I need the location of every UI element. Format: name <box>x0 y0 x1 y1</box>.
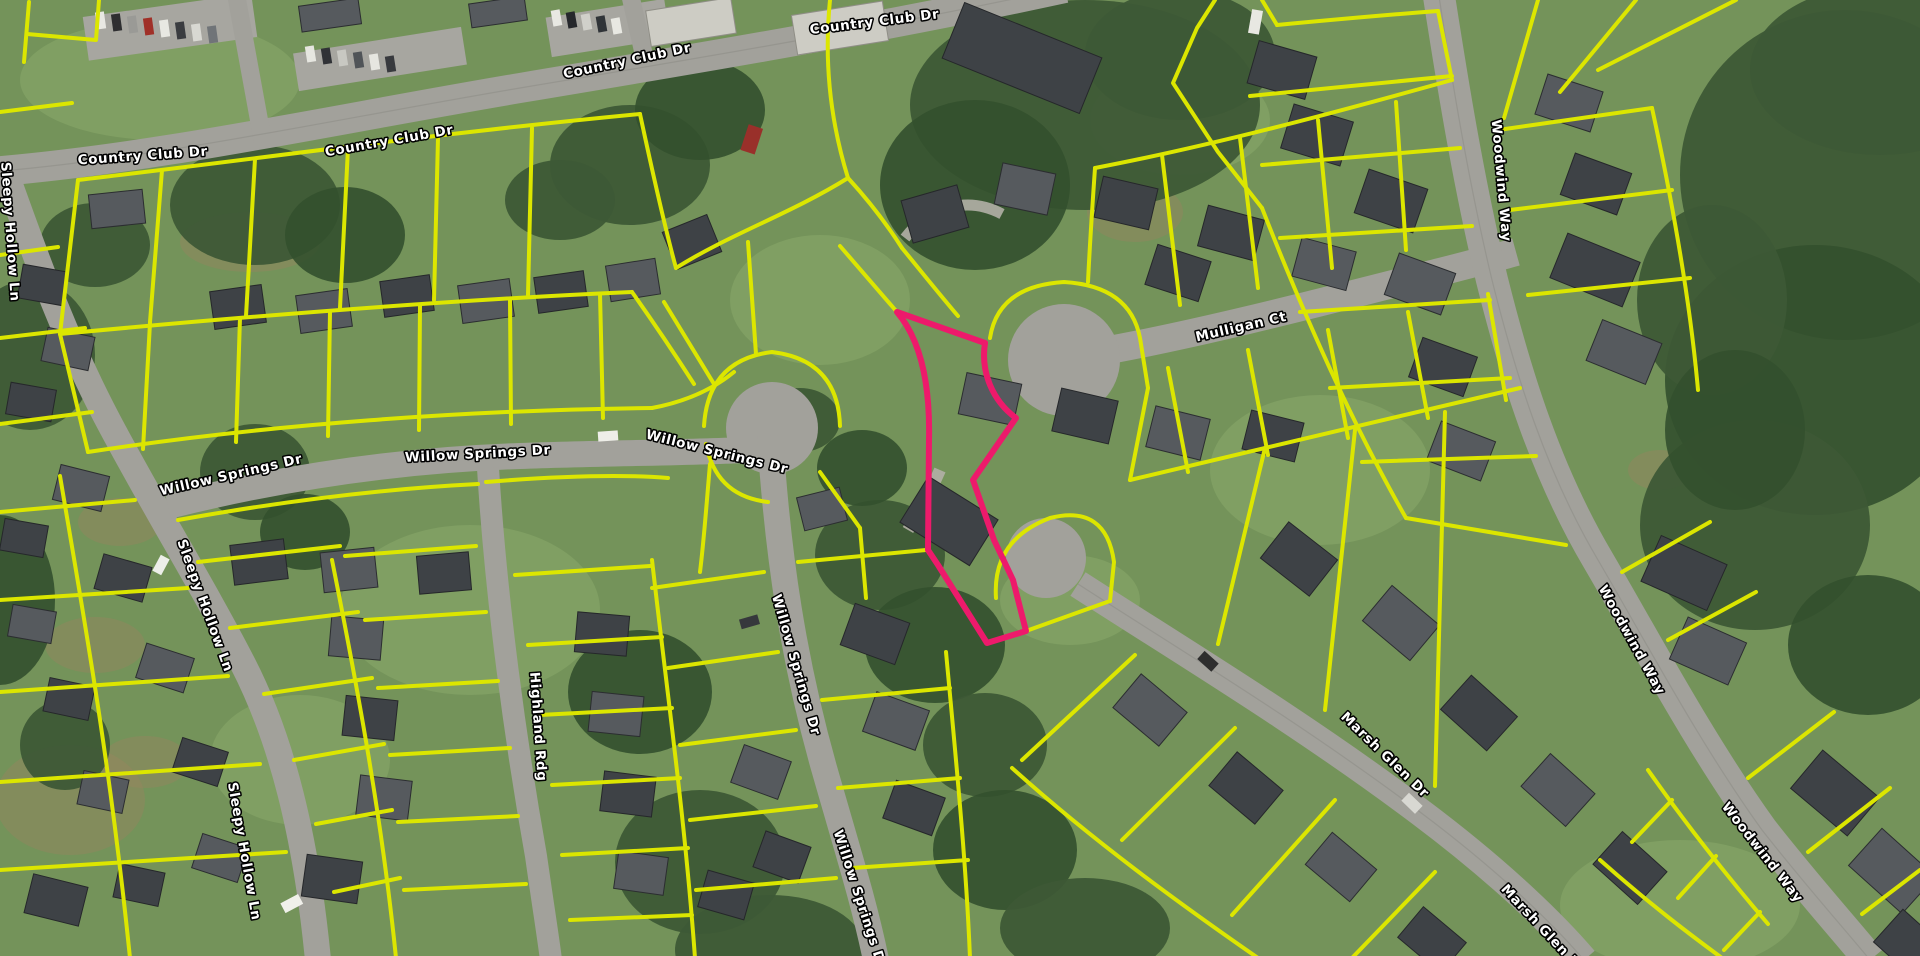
culdesac-marsh-glen <box>1006 518 1086 598</box>
map-viewport[interactable]: Country Club DrCountry Club DrCountry Cl… <box>0 0 1920 956</box>
map-canvas[interactable]: Country Club DrCountry Club DrCountry Cl… <box>0 0 1920 956</box>
